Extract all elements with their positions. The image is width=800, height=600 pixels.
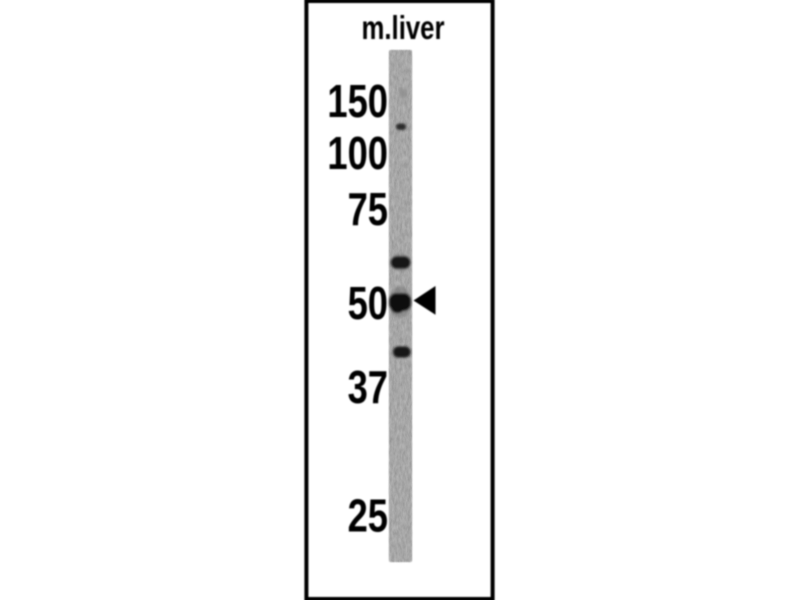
svg-text:150: 150 [327,75,388,127]
svg-text:50: 50 [348,277,388,329]
svg-text:m.liver: m.liver [362,10,445,47]
svg-text:100: 100 [327,127,388,179]
svg-text:37: 37 [348,361,388,413]
svg-text:25: 25 [348,489,388,541]
svg-text:75: 75 [348,183,388,235]
